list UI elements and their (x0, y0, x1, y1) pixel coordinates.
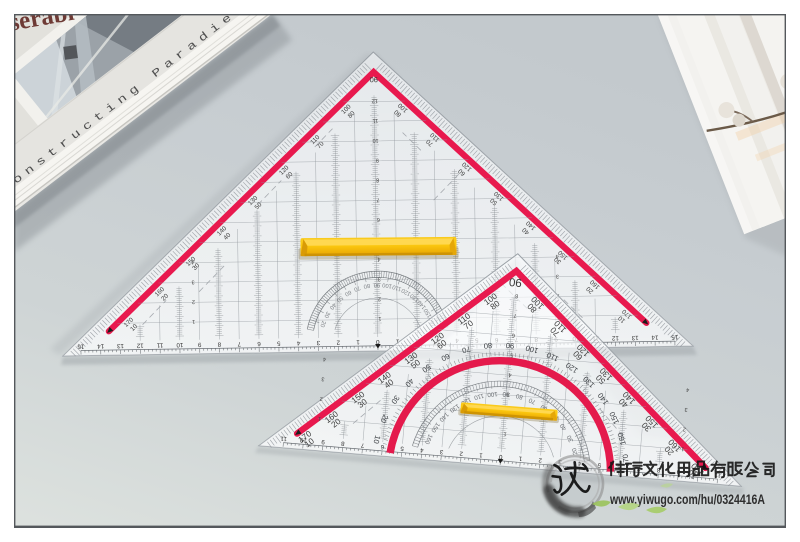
svg-text:1: 1 (318, 415, 322, 421)
svg-text:4: 4 (191, 259, 194, 265)
svg-text:7: 7 (513, 312, 517, 318)
svg-text:1: 1 (681, 445, 685, 451)
svg-text:90: 90 (374, 281, 381, 287)
svg-text:14: 14 (97, 342, 105, 349)
svg-text:2: 2 (320, 395, 324, 401)
svg-text:80: 80 (363, 282, 370, 289)
svg-text:5: 5 (510, 351, 514, 357)
svg-text:13: 13 (116, 342, 124, 349)
svg-text:1: 1 (503, 430, 507, 436)
svg-text:8: 8 (515, 292, 519, 298)
svg-text:10: 10 (176, 341, 184, 348)
svg-text:90: 90 (506, 341, 515, 351)
svg-text:11: 11 (280, 435, 288, 443)
svg-text:12: 12 (136, 342, 144, 349)
svg-text:7: 7 (377, 196, 380, 202)
svg-text:4: 4 (323, 356, 327, 362)
svg-text:3: 3 (556, 273, 559, 279)
svg-text:6: 6 (512, 332, 516, 338)
svg-text:11: 11 (373, 117, 379, 123)
svg-text:3: 3 (321, 375, 325, 381)
svg-text:11: 11 (156, 341, 163, 348)
svg-text:4: 4 (508, 371, 512, 377)
svg-text:100: 100 (486, 390, 497, 398)
svg-text:10: 10 (299, 436, 307, 444)
svg-text:3: 3 (684, 406, 688, 412)
svg-text:2: 2 (192, 298, 195, 304)
svg-text:4: 4 (686, 386, 690, 392)
svg-text:1: 1 (192, 318, 195, 324)
svg-text:90: 90 (502, 390, 510, 398)
svg-text:90: 90 (509, 275, 523, 288)
svg-text:12: 12 (372, 97, 378, 103)
svg-text:6: 6 (377, 216, 380, 222)
svg-text:15: 15 (77, 343, 85, 350)
svg-text:13: 13 (631, 334, 639, 341)
svg-text:1: 1 (378, 315, 381, 321)
svg-text:8: 8 (376, 177, 379, 183)
svg-text:3: 3 (192, 278, 195, 284)
svg-text:4: 4 (556, 253, 559, 259)
svg-text:90: 90 (369, 75, 377, 84)
svg-text:2: 2 (683, 426, 687, 432)
svg-text:14: 14 (651, 334, 659, 341)
svg-text:12: 12 (611, 334, 619, 341)
svg-text:9: 9 (376, 157, 379, 163)
svg-text:15: 15 (671, 333, 679, 340)
svg-text:10: 10 (373, 137, 379, 143)
svg-text:80: 80 (483, 341, 492, 351)
